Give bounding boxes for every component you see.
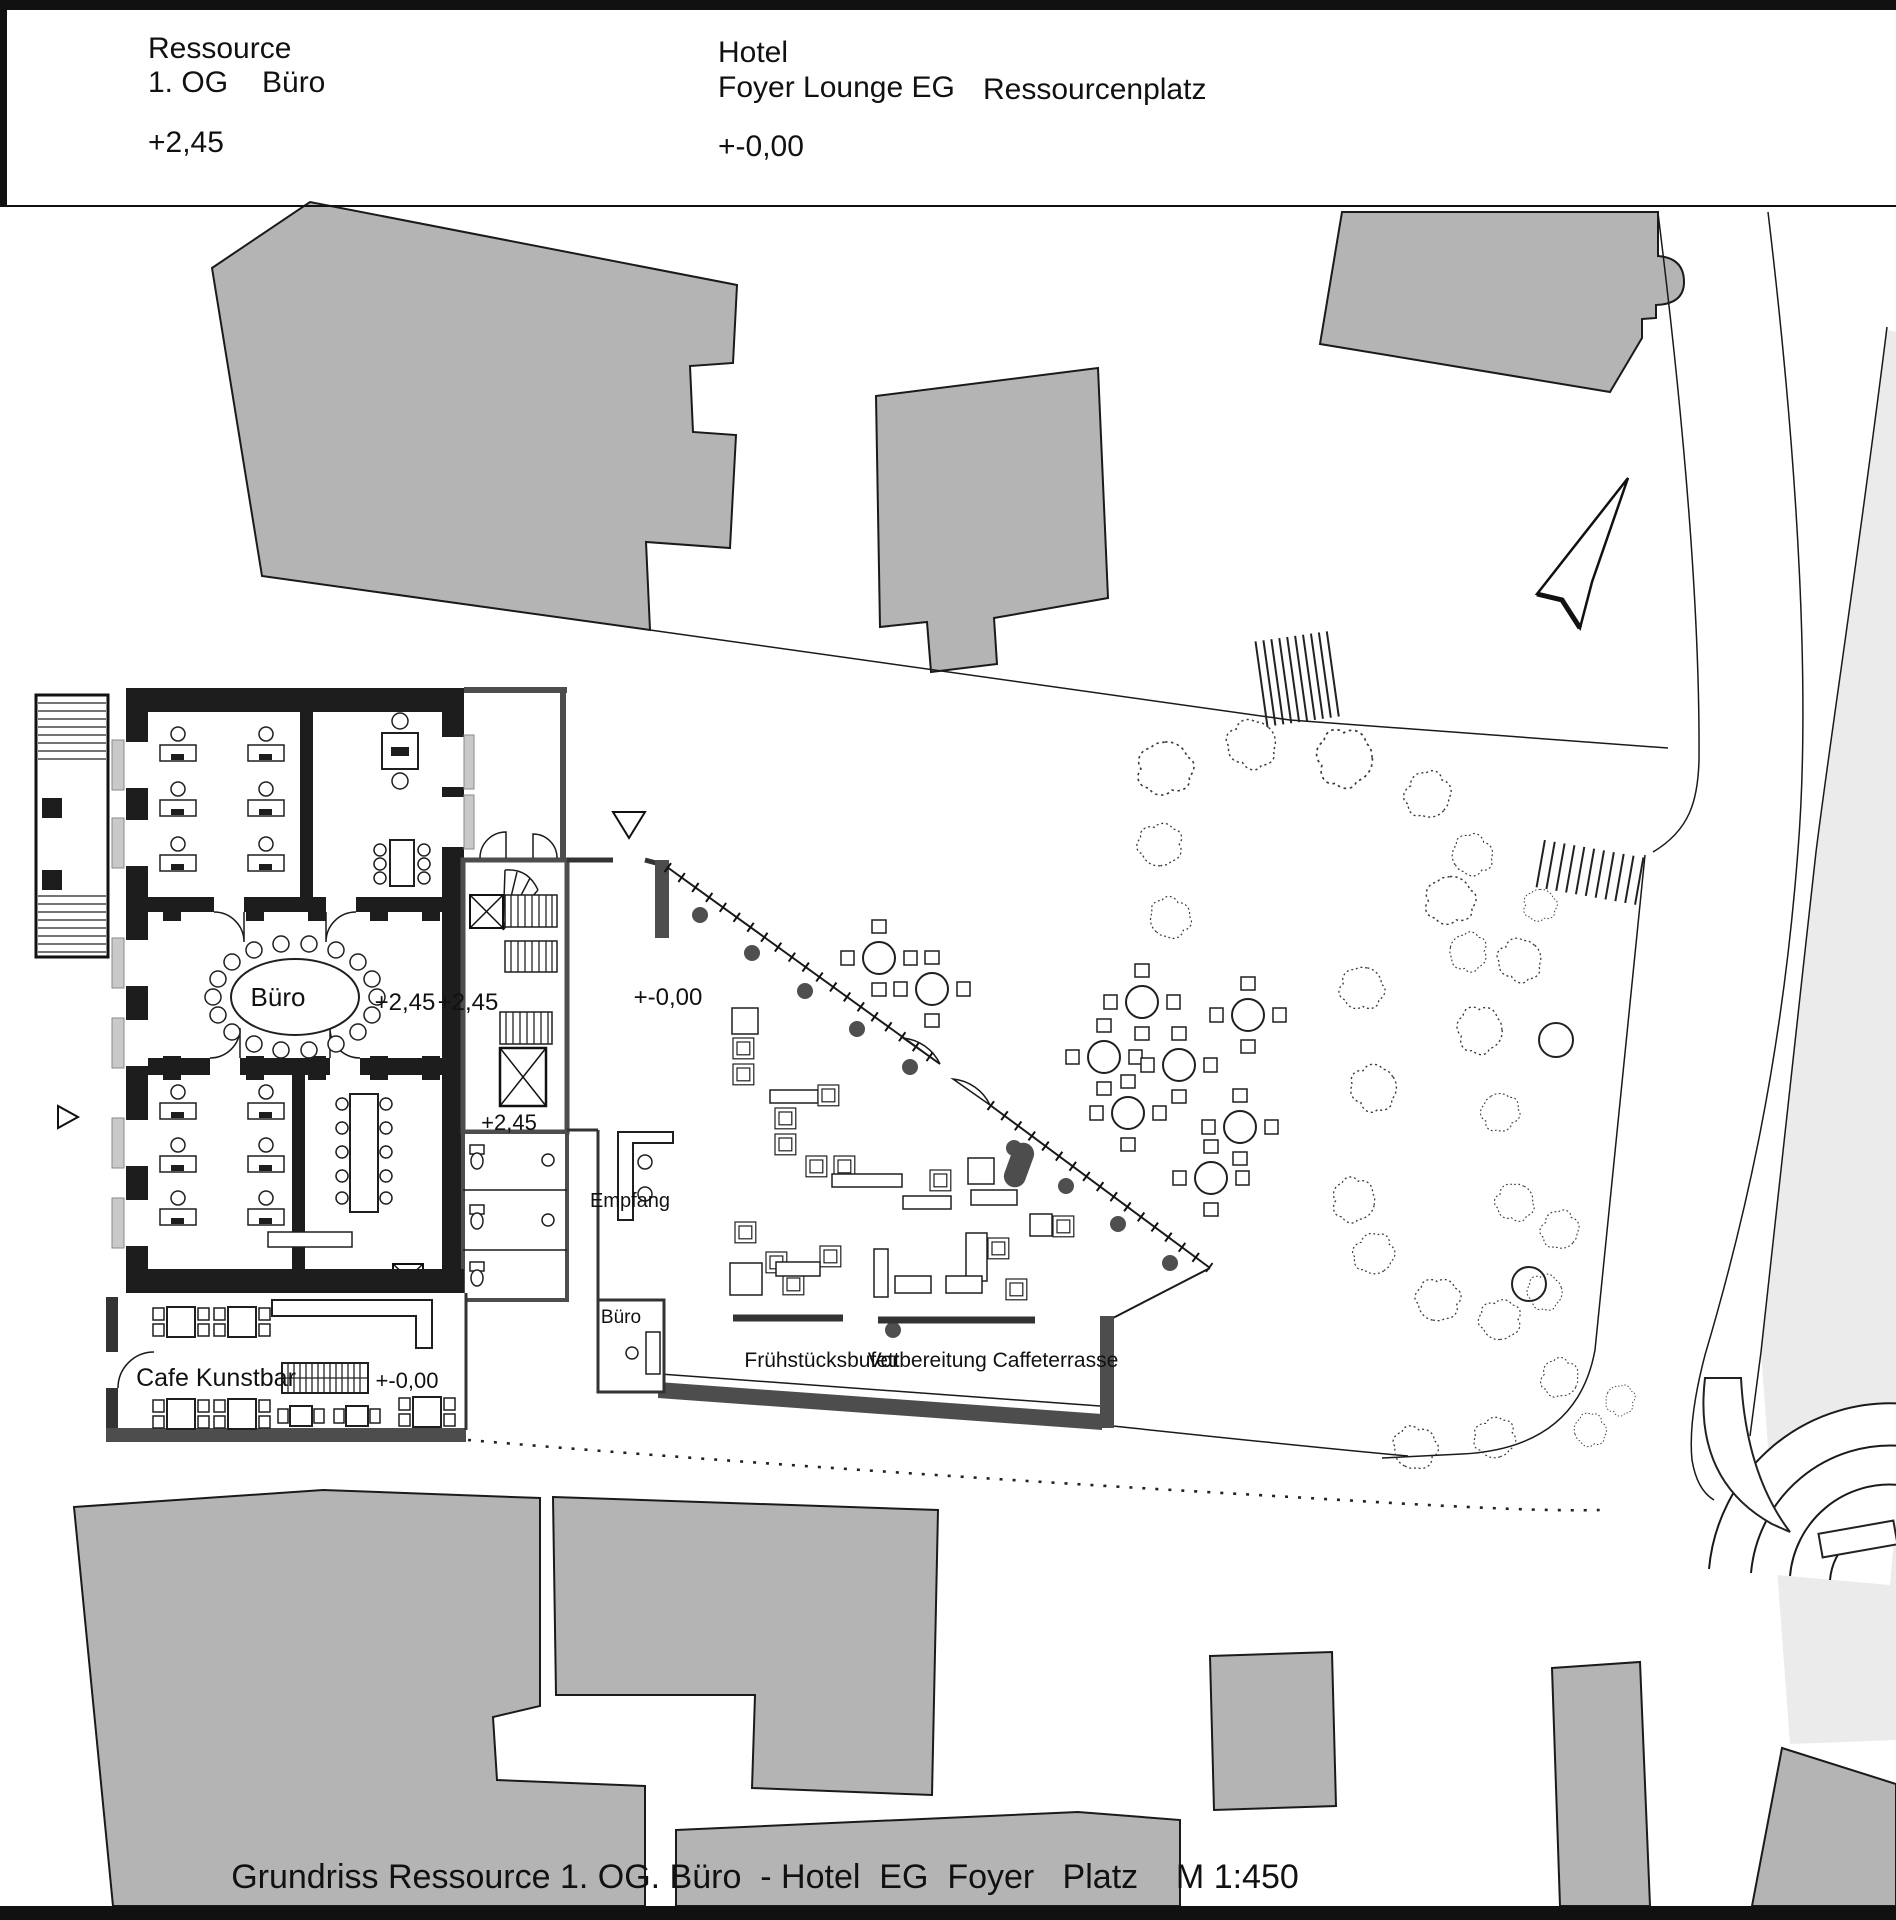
east-wall	[1100, 1316, 1114, 1428]
wc-rooms	[463, 1132, 567, 1300]
core-level: +2,45	[481, 1110, 537, 1135]
plan-sheet: Ressource 1. OG Büro +2,45 Hotel Foyer L…	[0, 0, 1896, 1920]
armchair	[820, 1246, 841, 1267]
armchair	[733, 1038, 754, 1059]
toilet	[470, 1145, 484, 1169]
toilet	[470, 1205, 484, 1229]
floor-plan-drawing: Ressource 1. OG Büro +2,45 Hotel Foyer L…	[0, 0, 1896, 1920]
frame-bottom	[0, 1906, 1896, 1920]
armchair	[806, 1156, 827, 1177]
terrace-prep-label: Vorbereitung Caffeterrasse	[868, 1349, 1119, 1372]
frame-left	[0, 0, 7, 206]
header-building: Hotel	[718, 36, 788, 69]
stair-run	[500, 895, 557, 1044]
foyer-level: +-0,00	[634, 984, 703, 1011]
elevator	[500, 1048, 546, 1106]
header-area: Foyer Lounge EG	[718, 71, 955, 104]
armchair	[988, 1238, 1009, 1259]
cafe-kunstbar	[106, 1269, 466, 1442]
cafe-table-small	[278, 1406, 324, 1426]
neighbor-building-se2	[1552, 1662, 1650, 1906]
back-office-label: Büro	[601, 1307, 641, 1328]
cafe-table-small	[334, 1406, 380, 1426]
office-room-label: Büro	[251, 982, 306, 1012]
cafe-level: +-0,00	[376, 1368, 439, 1393]
cafe-label: Cafe Kunstbar	[136, 1364, 296, 1392]
external-staircase-west	[36, 695, 108, 957]
armchair	[733, 1064, 754, 1085]
reception-label: Empfang	[590, 1190, 670, 1212]
office-level-b: +2,45	[438, 989, 499, 1016]
elevator	[470, 895, 503, 928]
header-floor: 1. OG	[148, 66, 228, 99]
header-project: Ressource	[148, 32, 291, 65]
armchair	[1053, 1216, 1074, 1237]
plan-title: Grundriss Ressource 1. OG. Büro - Hotel …	[231, 1858, 1299, 1896]
header-level-right: +-0,00	[718, 130, 804, 163]
neighbor-building-se1	[1210, 1652, 1336, 1810]
header-use: Büro	[262, 66, 325, 99]
armchair	[775, 1134, 796, 1155]
armchair	[783, 1274, 804, 1295]
office-level-a: +2,45	[375, 989, 436, 1016]
armchair	[1006, 1279, 1027, 1300]
header-place: Ressourcenplatz	[983, 73, 1206, 106]
cafe-south-wall	[106, 1428, 466, 1442]
frame-top	[0, 0, 1896, 10]
header-level-left: +2,45	[148, 126, 224, 159]
armchair	[735, 1222, 756, 1243]
toilet	[470, 1262, 484, 1286]
armchair	[775, 1108, 796, 1129]
armchair	[930, 1170, 951, 1191]
armchair	[818, 1085, 839, 1106]
